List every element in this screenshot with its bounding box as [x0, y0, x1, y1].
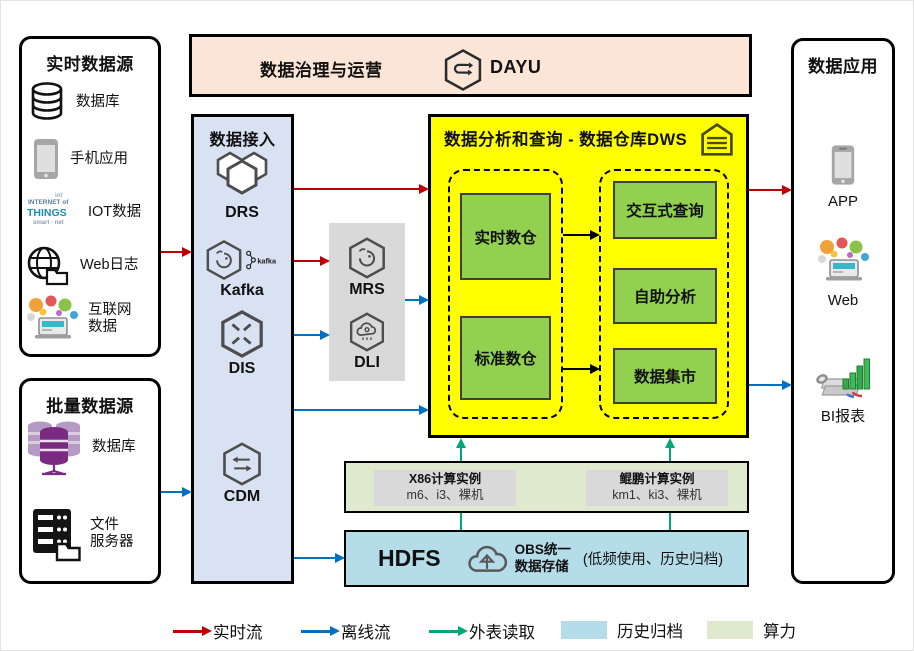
obs-cloud-icon: [465, 542, 509, 576]
app-item: BI报表: [809, 353, 877, 426]
dws-title: 数据分析和查询 - 数据仓库DWS: [444, 126, 687, 150]
iot-wordcloud-icon: INTERNET of THINGS smart · net iot: [25, 191, 79, 233]
source-label: 文件 服务器: [90, 517, 134, 550]
legend-history-archive: 历史归档: [561, 618, 683, 642]
app-item: Web: [813, 236, 873, 309]
arrow-dws-to-app: [749, 189, 783, 191]
dws-node-label: 实时数仓: [474, 226, 536, 248]
purple-database-cluster-icon: [25, 416, 83, 478]
list-item: INTERNET of THINGS smart · net iot IOT数据: [25, 191, 157, 233]
cdm-icon: [221, 441, 263, 487]
service-name: MRS: [349, 281, 385, 299]
red-arrow-icon: [173, 630, 203, 633]
legend-offline-flow: 离线流: [301, 619, 391, 643]
x86-instance: X86计算实例 m6、i3、裸机: [374, 470, 516, 506]
web-icon: [816, 236, 870, 286]
legend-external-read: 外表读取: [429, 619, 535, 643]
instance-title: 鲲鹏计算实例: [619, 472, 694, 488]
list-item: 手机应用: [31, 138, 157, 180]
instance-detail: m6、i3、裸机: [406, 488, 483, 504]
legend-realtime-flow: 实时流: [173, 619, 263, 643]
green-arrow-icon: [429, 630, 459, 633]
service-name: CDM: [224, 488, 260, 506]
app-label: APP: [828, 193, 858, 210]
dws-realtime-warehouse: 实时数仓: [460, 193, 551, 280]
obs-label: OBS统一 数据存储: [515, 542, 571, 574]
service-mrs: MRS: [347, 236, 387, 299]
dws-node-label: 数据集市: [634, 365, 696, 387]
service-dli: DLI: [348, 311, 386, 372]
service-cdm: CDM: [221, 441, 263, 506]
governance-banner: 数据治理与运营 DAYU: [189, 34, 752, 97]
dws-node-label: 自助分析: [634, 285, 696, 307]
arrow-compute-to-dws-right: [669, 447, 671, 461]
source-label: 互联网 数据: [88, 302, 132, 335]
arrow-realtime-to-query: [563, 234, 591, 236]
arrow-cdm-to-hdfs: [294, 557, 336, 559]
dws-self-analysis: 自助分析: [613, 268, 717, 324]
data-apps-box: 数据应用: [791, 38, 895, 584]
legend-label: 算力: [763, 618, 796, 642]
data-apps-title: 数据应用: [794, 52, 892, 77]
lightblue-swatch-icon: [561, 621, 607, 639]
source-label: Web日志: [80, 257, 139, 274]
source-label: 数据库: [76, 94, 120, 111]
arrow-dws-to-bi: [749, 384, 783, 386]
bi-report-icon: [813, 353, 873, 401]
arrow-kafka-to-mrs: [294, 260, 321, 262]
architecture-diagram: 实时数据源 数据库 手机应用 INTERNET of THINGS smart …: [0, 0, 914, 651]
kunpeng-instance: 鲲鹏计算实例 km1、ki3、裸机: [586, 470, 728, 506]
dws-node-label: 交互式查询: [626, 199, 704, 221]
arrow-dis-to-dli: [294, 334, 321, 336]
hdfs-label: HDFS: [378, 545, 441, 572]
arrow-mrs-to-dws: [405, 299, 420, 301]
drs-icon: [213, 147, 271, 203]
realtime-sources-title: 实时数据源: [22, 50, 158, 75]
compute-box: X86计算实例 m6、i3、裸机 鲲鹏计算实例 km1、ki3、裸机: [344, 461, 749, 513]
dayu-icon: [442, 48, 484, 92]
dws-interactive-query: 交互式查询: [613, 181, 717, 239]
legend-label: 离线流: [341, 619, 391, 643]
service-dis: DIS: [219, 309, 265, 378]
legend-label: 外表读取: [469, 619, 535, 643]
connector-hdfs-to-compute-right: [669, 513, 671, 530]
storage-note: (低频使用、历史归档): [583, 548, 723, 569]
source-label: 数据库: [92, 439, 136, 456]
app-label: BI报表: [821, 405, 865, 426]
legend-compute-power: 算力: [707, 618, 796, 642]
dws-data-mart: 数据集市: [613, 348, 717, 404]
legend-label: 实时流: [213, 619, 263, 643]
instance-detail: km1、ki3、裸机: [612, 488, 702, 504]
storage-box: HDFS OBS统一 数据存储 (低频使用、历史归档): [344, 530, 749, 587]
dis-icon: [219, 309, 265, 359]
list-item: 互联网 数据: [25, 294, 157, 344]
batch-sources-title: 批量数据源: [22, 392, 158, 417]
connector-hdfs-to-compute-left: [460, 513, 462, 530]
dli-icon: [348, 311, 386, 353]
file-server-icon: [29, 506, 81, 562]
app-item: APP: [813, 143, 873, 210]
legend-label: 历史归档: [617, 618, 683, 642]
globe-folder-icon: [25, 244, 71, 286]
arrow-access-to-dws: [294, 409, 420, 411]
list-item: 文件 服务器: [29, 506, 157, 562]
service-name: DRS: [225, 204, 259, 222]
dws-standard-warehouse: 标准数仓: [460, 316, 551, 400]
mrs-icon: [347, 236, 387, 280]
dayu-label: DAYU: [490, 57, 541, 78]
instance-title: X86计算实例: [409, 472, 481, 488]
service-name: DIS: [229, 360, 256, 378]
arrow-realtime-to-access: [161, 251, 183, 253]
database-icon: [27, 81, 67, 123]
dws-node-label: 标准数仓: [474, 347, 536, 369]
service-kafka: kafka Kafka: [197, 239, 287, 300]
phone-icon: [31, 138, 61, 180]
kafka-icon: [204, 239, 244, 281]
source-label: IOT数据: [88, 204, 141, 221]
warehouse-icon: [697, 121, 737, 157]
arrow-standard-to-mart: [563, 368, 591, 370]
service-drs: DRS: [211, 147, 273, 222]
list-item: 数据库: [25, 416, 157, 478]
governance-title: 数据治理与运营: [260, 56, 383, 81]
kafka-logo-icon: kafka: [244, 248, 280, 272]
phone-icon: [829, 143, 857, 187]
source-label: 手机应用: [70, 151, 128, 168]
arrow-compute-to-dws-left: [460, 447, 462, 461]
list-item: Web日志: [25, 244, 157, 286]
arrow-batch-to-access: [161, 491, 183, 493]
lightgreen-swatch-icon: [707, 621, 753, 639]
kafka-icon-row: kafka: [204, 239, 280, 281]
service-name: Kafka: [220, 282, 264, 300]
internet-data-icon: [25, 294, 79, 344]
service-name: DLI: [354, 354, 380, 372]
list-item: 数据库: [27, 81, 157, 123]
arrow-drs-to-dws: [294, 188, 420, 190]
app-label: Web: [828, 292, 859, 309]
blue-arrow-icon: [301, 630, 331, 633]
svg-text:kafka: kafka: [257, 256, 277, 265]
